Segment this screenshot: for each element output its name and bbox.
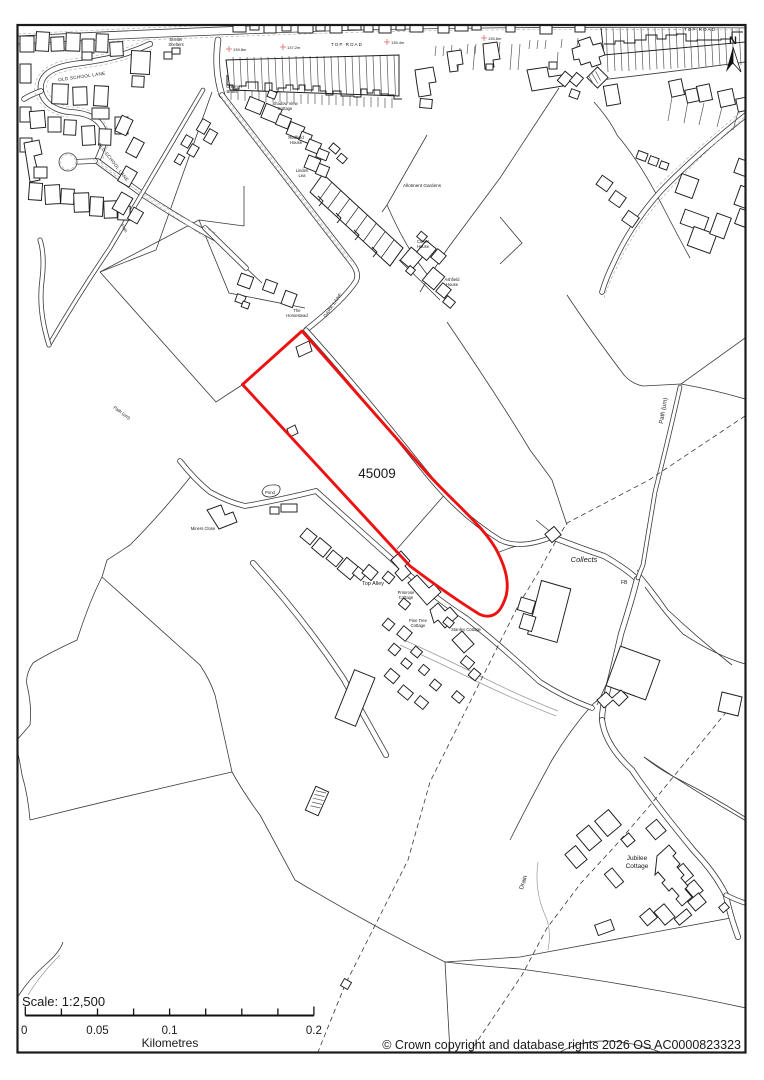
svg-text:House: House: [417, 244, 430, 249]
svg-text:TOP ROAD: TOP ROAD: [684, 27, 716, 32]
svg-text:Top Alley: Top Alley: [362, 581, 384, 587]
svg-text:135.8m: 135.8m: [488, 36, 502, 41]
svg-text:45009: 45009: [358, 466, 396, 481]
svg-text:Allotment Gardens: Allotment Gardens: [403, 183, 442, 188]
svg-text:House: House: [446, 282, 459, 287]
svg-text:0.2: 0.2: [306, 1025, 322, 1037]
svg-text:Cottage: Cottage: [399, 595, 414, 600]
svg-text:N: N: [729, 35, 737, 47]
svg-text:135.4m: 135.4m: [391, 40, 405, 45]
svg-text:Cottage: Cottage: [278, 106, 293, 111]
svg-text:0: 0: [21, 1025, 27, 1037]
svg-text:Kilometres: Kilometres: [142, 1036, 199, 1050]
svg-text:Miners Close: Miners Close: [191, 526, 216, 531]
svg-text:Cottage: Cottage: [411, 623, 426, 628]
svg-text:© Crown copyright and database: © Crown copyright and database rights 20…: [382, 1038, 741, 1052]
svg-text:Lea: Lea: [299, 173, 307, 178]
svg-text:Pond: Pond: [265, 490, 275, 495]
svg-text:TOP ROAD: TOP ROAD: [331, 42, 363, 47]
svg-text:Stanley Cottage: Stanley Cottage: [451, 627, 481, 632]
svg-text:Cottage: Cottage: [626, 863, 649, 870]
svg-text:FB: FB: [621, 580, 628, 586]
svg-text:Shelters: Shelters: [168, 42, 183, 47]
svg-text:Collects: Collects: [571, 555, 598, 564]
svg-text:Briars: Briars: [227, 89, 238, 94]
svg-text:Jubilee: Jubilee: [627, 855, 648, 862]
svg-text:137.2m: 137.2m: [287, 45, 301, 50]
svg-text:House: House: [290, 140, 303, 145]
svg-text:Homestead: Homestead: [286, 313, 308, 318]
svg-text:139.8m: 139.8m: [233, 47, 247, 52]
svg-text:Scale: 1:2,500: Scale: 1:2,500: [22, 994, 105, 1009]
svg-text:0.05: 0.05: [86, 1025, 108, 1037]
